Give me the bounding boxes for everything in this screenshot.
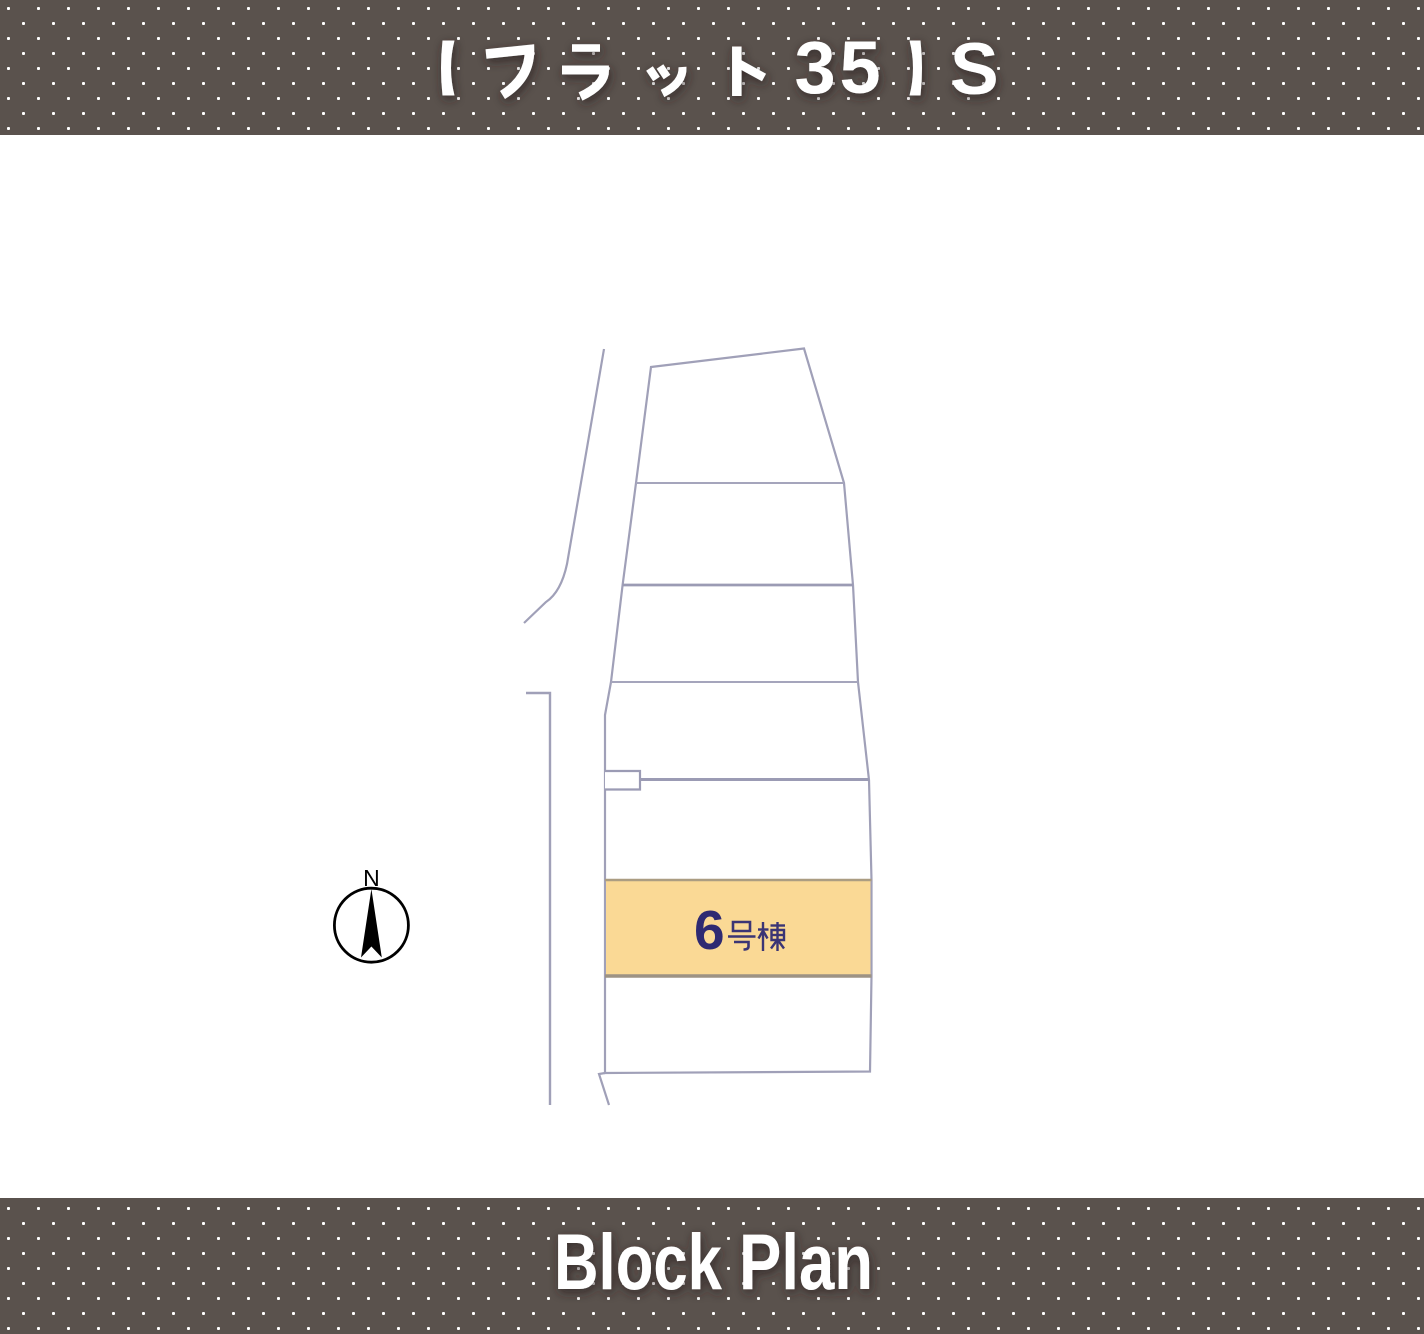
svg-text:Plan: Plan <box>739 1217 873 1306</box>
svg-text:6: 6 <box>694 899 725 961</box>
svg-text:3: 3 <box>795 26 836 109</box>
svg-text:Block: Block <box>554 1217 723 1306</box>
svg-text:S: S <box>950 29 999 110</box>
svg-text:N: N <box>363 865 380 891</box>
svg-text:5: 5 <box>840 26 881 109</box>
